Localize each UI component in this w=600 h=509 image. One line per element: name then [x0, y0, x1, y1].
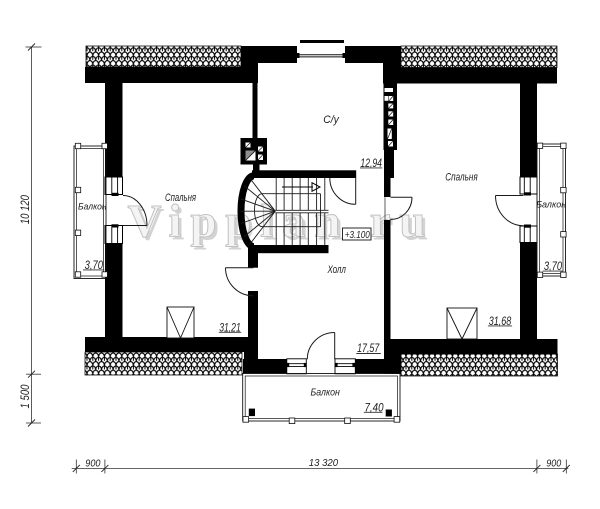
svg-text:1 500: 1 500	[18, 384, 32, 408]
svg-text:900: 900	[85, 459, 100, 470]
svg-text:10 120: 10 120	[18, 195, 32, 224]
svg-text:+3.100: +3.100	[345, 229, 370, 241]
svg-text:17,57: 17,57	[357, 341, 379, 355]
svg-text:Балкон: Балкон	[536, 199, 566, 209]
svg-text:Спальня: Спальня	[165, 192, 196, 204]
svg-text:Холл: Холл	[327, 264, 346, 276]
svg-text:13 320: 13 320	[309, 458, 339, 469]
svg-text:С/у: С/у	[323, 114, 340, 126]
svg-text:Спальня: Спальня	[445, 171, 478, 183]
svg-text:900: 900	[546, 458, 561, 469]
svg-text:Балкон: Балкон	[311, 387, 341, 398]
svg-text:Балкон: Балкон	[78, 202, 107, 212]
